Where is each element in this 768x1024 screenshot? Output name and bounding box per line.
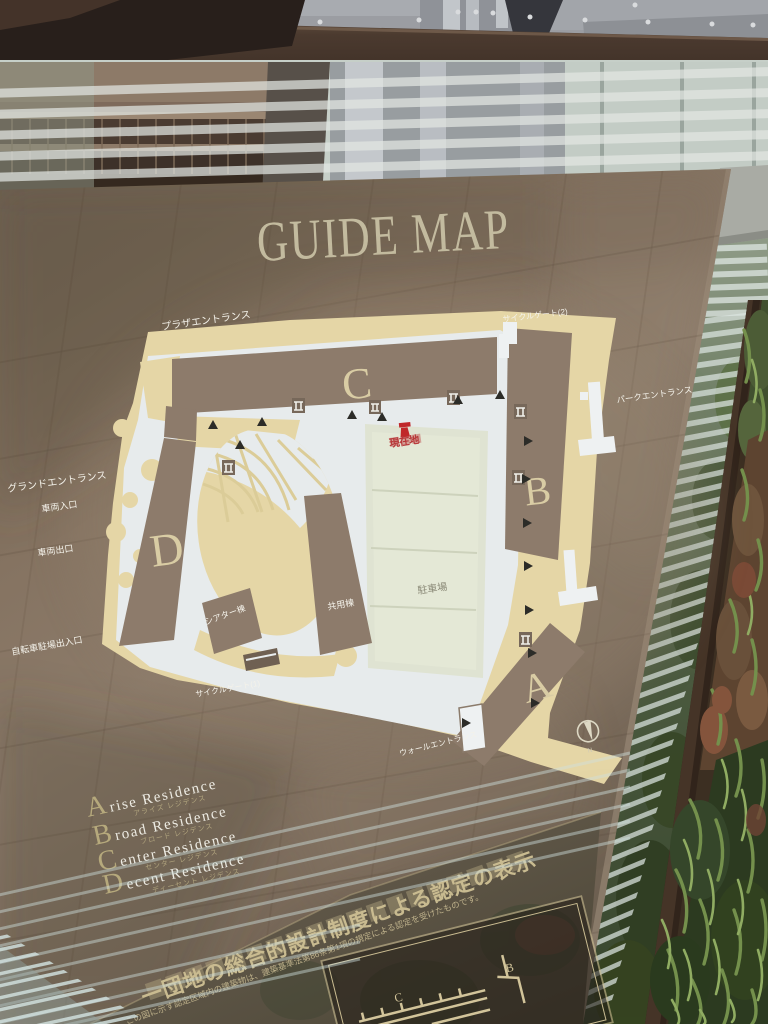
svg-text:B: B xyxy=(521,467,553,515)
svg-text:C: C xyxy=(340,358,374,410)
svg-text:D: D xyxy=(147,522,187,577)
svg-text:GUIDE MAP: GUIDE MAP xyxy=(255,197,511,273)
